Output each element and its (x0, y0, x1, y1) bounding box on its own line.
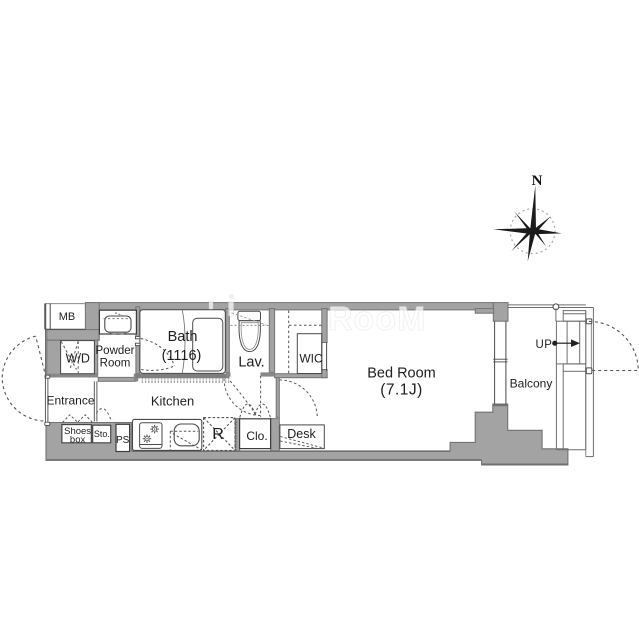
svg-text:box: box (70, 435, 86, 446)
svg-text:W/D: W/D (66, 352, 90, 366)
svg-text:Room: Room (100, 358, 131, 370)
svg-text:Desk: Desk (287, 427, 316, 441)
svg-text:Powder: Powder (96, 345, 135, 357)
svg-text:(7.1J): (7.1J) (380, 382, 423, 399)
svg-text:Bath: Bath (168, 329, 198, 345)
svg-text:Balcony: Balcony (510, 377, 553, 391)
svg-text:Lav.: Lav. (238, 355, 264, 371)
svg-text:UP: UP (536, 339, 553, 351)
svg-text:Kitchen: Kitchen (151, 394, 194, 409)
svg-text:N: N (532, 173, 543, 189)
svg-text:Bed Room: Bed Room (367, 366, 436, 382)
svg-text:PS: PS (116, 435, 130, 446)
svg-text:Sto.: Sto. (94, 429, 110, 439)
svg-text:WIC: WIC (299, 352, 323, 366)
svg-text:Clo.: Clo. (246, 429, 267, 443)
svg-text:Entrance: Entrance (46, 394, 94, 408)
svg-text:R: R (212, 426, 224, 443)
svg-text:MB: MB (59, 311, 76, 323)
svg-text:(1116): (1116) (162, 348, 202, 364)
svg-text:RooM: RooM (328, 300, 426, 338)
